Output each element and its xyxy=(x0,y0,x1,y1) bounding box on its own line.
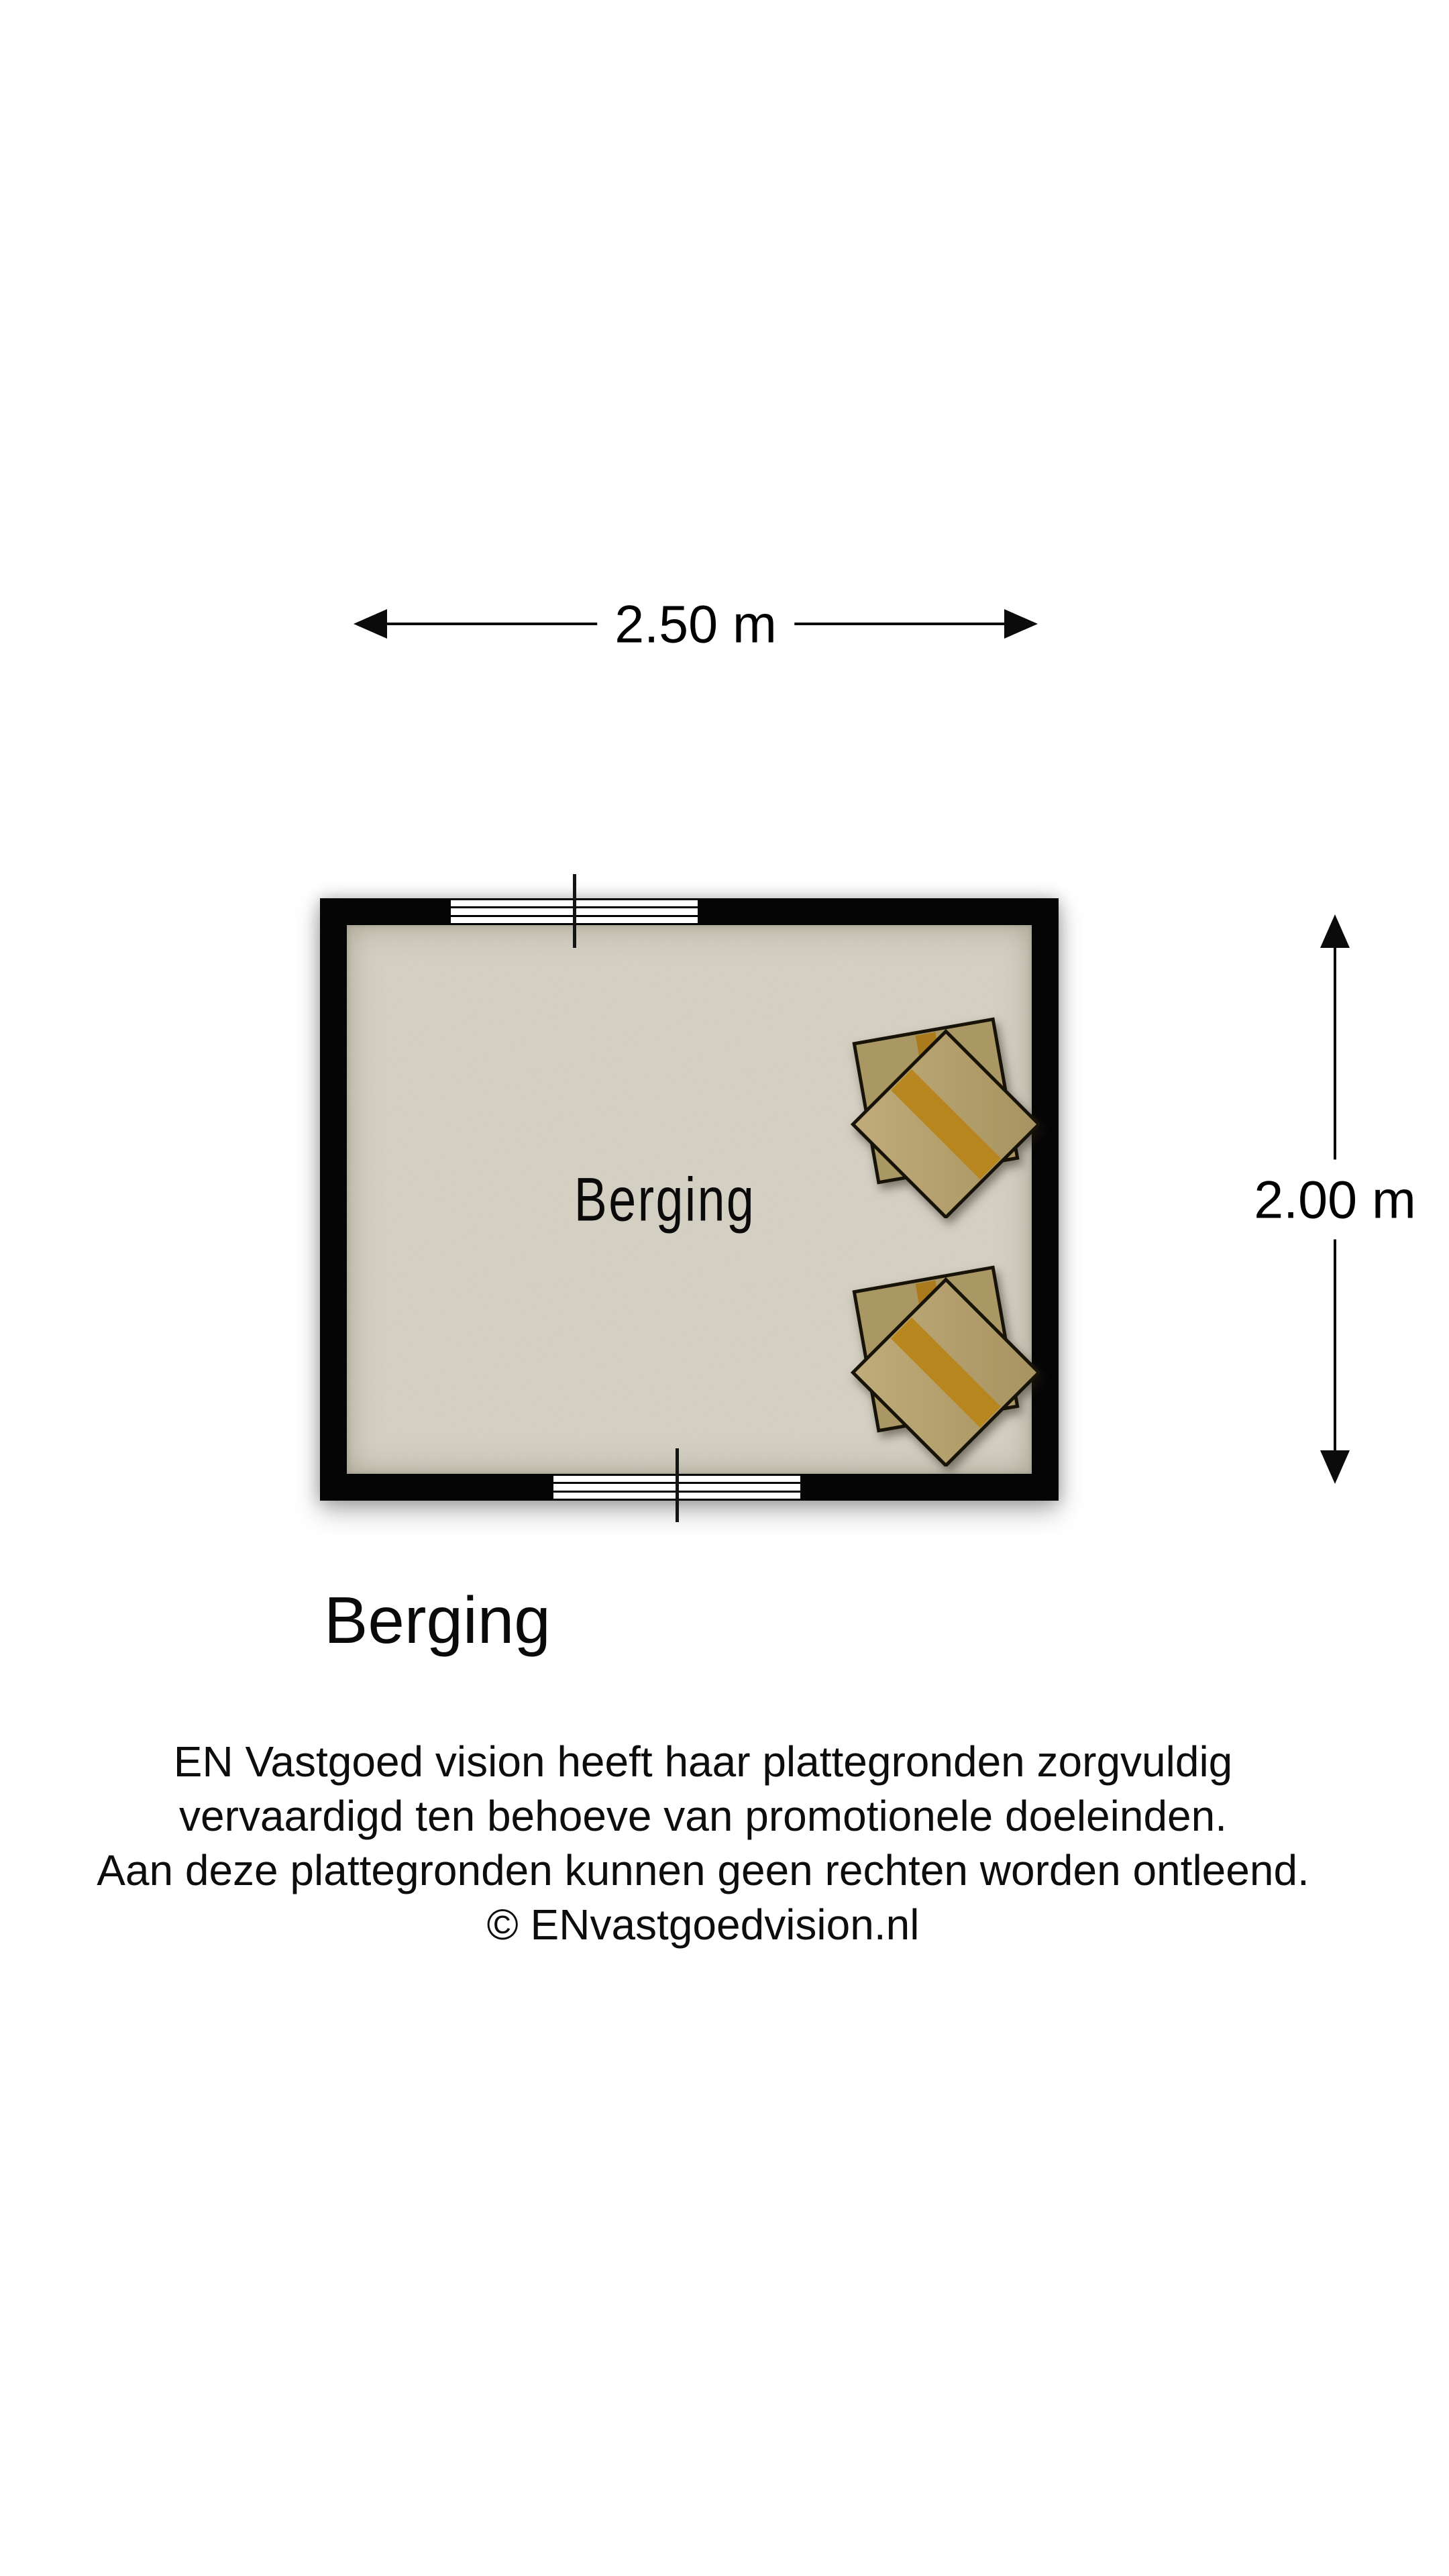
plan-title: Berging xyxy=(324,1585,551,1657)
cardboard-boxes-icon xyxy=(845,1265,1040,1466)
disclaimer-line: EN Vastgoed vision heeft haar plattegron… xyxy=(0,1735,1406,1789)
width-dimension-label: 2.50 m xyxy=(597,594,794,655)
floorplan-page: 2.50 m Berging xyxy=(0,0,1449,2576)
arrow-right-icon xyxy=(1004,609,1038,639)
disclaimer: EN Vastgoed vision heeft haar plattegron… xyxy=(0,1735,1406,1952)
window-bottom-divider-icon xyxy=(676,1448,679,1522)
height-dimension-label: 2.00 m xyxy=(1250,1160,1420,1240)
disclaimer-line: © ENvastgoedvision.nl xyxy=(0,1898,1406,1952)
disclaimer-line: Aan deze plattegronden kunnen geen recht… xyxy=(0,1843,1406,1898)
arrow-down-icon xyxy=(1320,1450,1350,1484)
room-label: Berging xyxy=(574,1165,755,1236)
disclaimer-line: vervaardigd ten behoeve van promotionele… xyxy=(0,1789,1406,1843)
cardboard-boxes-icon xyxy=(845,1017,1040,1218)
window-top-divider-icon xyxy=(573,874,576,948)
